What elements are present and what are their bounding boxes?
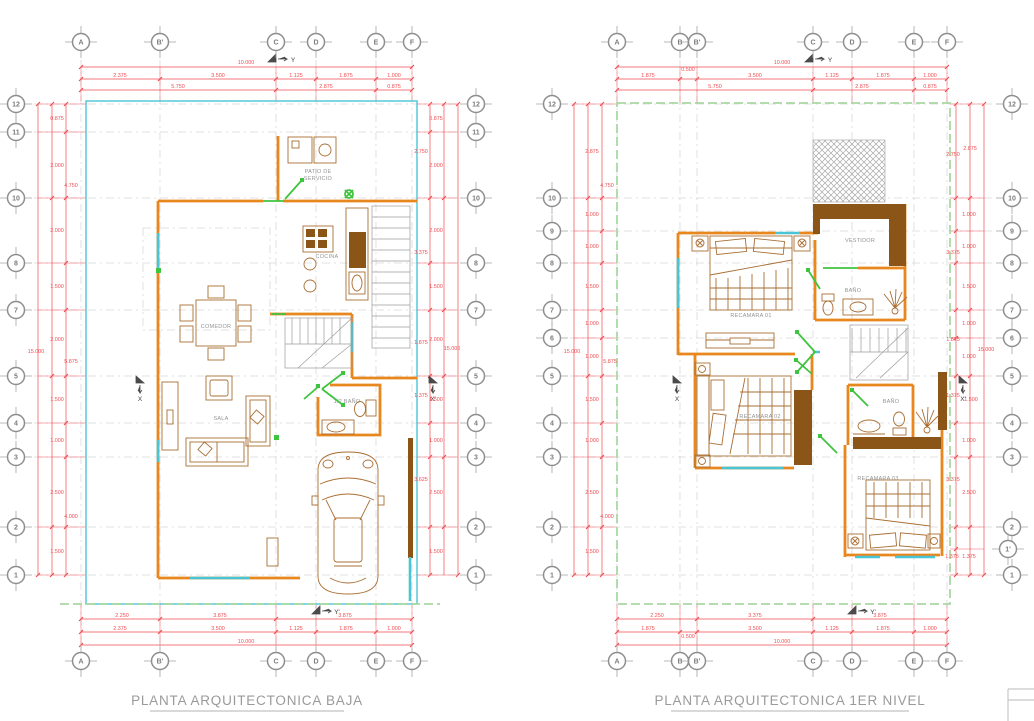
- svg-text:D: D: [313, 40, 318, 47]
- dimension-label: 3.375: [946, 477, 960, 483]
- dimension-label: 2.500: [585, 490, 599, 496]
- svg-text:B': B': [157, 40, 164, 47]
- grid-bubble: 2: [996, 511, 1028, 543]
- grid-axes-lines: [16, 42, 476, 661]
- svg-text:F: F: [945, 659, 950, 666]
- svg-text:10: 10: [472, 196, 480, 203]
- dimension-label: 0.875: [387, 84, 401, 90]
- grid-bubble: D: [300, 645, 332, 677]
- plan-nivel1: RECAMARA 01 VESTIDOR BAÑO RECAMARA 02 BA…: [536, 26, 1028, 677]
- dimension-label: 1.500: [50, 549, 64, 555]
- room-label-sala: SALA: [213, 416, 228, 422]
- svg-text:E: E: [912, 40, 917, 47]
- grid-bubble: D: [836, 645, 868, 677]
- grid-bubble: 9: [996, 215, 1028, 247]
- svg-text:11: 11: [12, 130, 20, 137]
- dimension-label: 3.500: [748, 626, 762, 632]
- dimension-label: 10.000: [774, 60, 791, 66]
- dimension-label: 1.875: [946, 337, 960, 343]
- grid-bubble: C: [797, 26, 829, 58]
- dimension-label: 2.875: [319, 84, 333, 90]
- svg-text:10: 10: [1008, 196, 1016, 203]
- dimension-label: 1.000: [962, 354, 976, 360]
- svg-text:4: 4: [1010, 421, 1014, 428]
- grid-bubble: 1: [996, 559, 1028, 591]
- dimension-label: 3.375: [414, 250, 428, 256]
- svg-text:D: D: [849, 40, 854, 47]
- grid-bubble: 2: [0, 511, 32, 543]
- grid-bubble: A: [601, 645, 633, 677]
- dimension-label: 3.875: [338, 613, 352, 619]
- dimension-label: 1.500: [429, 397, 443, 403]
- dimension-label: 0.875: [50, 116, 64, 122]
- grid-bubble: 2: [536, 511, 568, 543]
- dimension-label: 2.000: [429, 337, 443, 343]
- grid-bubble: 5: [460, 360, 492, 392]
- dimension-label: 2.000: [429, 163, 443, 169]
- grid-axes-lines: [552, 42, 1012, 661]
- grid-bubble: 7: [996, 294, 1028, 326]
- grid-bubble: 8: [996, 247, 1028, 279]
- svg-text:B: B: [677, 659, 682, 666]
- dimension-label: 2.250: [650, 613, 664, 619]
- cad-sheet: PATIO DE SERVICIO COCINA COMEDOR SALA 1/…: [0, 0, 1034, 721]
- dimension-label: 1.000: [585, 354, 599, 360]
- dimension-label: 2.250: [115, 613, 129, 619]
- dimension-label: 2.000: [50, 163, 64, 169]
- grid-bubble: B': [144, 645, 176, 677]
- grid-bubble: E: [898, 645, 930, 677]
- dimension-label: 2.875: [963, 146, 977, 152]
- grid-bubble: 10: [536, 182, 568, 214]
- dimension-label: 1.000: [585, 321, 599, 327]
- grid-bubble: E: [898, 26, 930, 58]
- recamara03-closet: [938, 372, 947, 430]
- dimension-label: 10.000: [774, 639, 791, 645]
- dimension-label: 1.500: [585, 397, 599, 403]
- dimension-label: 0.500: [681, 67, 695, 73]
- dimension-ticks: [36, 65, 460, 647]
- room-label-patio-1: PATIO DE: [305, 169, 332, 175]
- dimension-label: 1.500: [962, 284, 976, 290]
- dimension-label: 4.000: [64, 514, 78, 520]
- dimension-label: 1.500: [50, 284, 64, 290]
- recamara02-closet: [794, 390, 812, 465]
- svg-text:D: D: [849, 659, 854, 666]
- dimension-label: 1.000: [962, 321, 976, 327]
- room-label-medio-bano: 1/2 BAÑO: [334, 398, 361, 405]
- grid-bubble: 3: [460, 441, 492, 473]
- svg-text:Y: Y: [291, 57, 296, 64]
- room-label-patio-2: SERVICIO: [304, 176, 333, 182]
- svg-text:B': B': [694, 659, 701, 666]
- dimension-label: 1.500: [429, 284, 443, 290]
- svg-text:1: 1: [550, 573, 554, 580]
- grid-bubble: 4: [0, 407, 32, 439]
- dimension-label: 1.125: [289, 626, 303, 632]
- grid-bubble: 8: [0, 247, 32, 279]
- grid-bubble: A: [65, 645, 97, 677]
- dimension-label: 1.875: [641, 73, 655, 79]
- svg-text:3: 3: [1010, 455, 1014, 462]
- dimension-label: 1.875: [339, 626, 353, 632]
- svg-text:F: F: [410, 659, 415, 666]
- grid-bubble: 3: [996, 441, 1028, 473]
- grid-bubble: F: [931, 645, 963, 677]
- grid-bubble: A: [601, 26, 633, 58]
- dimension-label: 1.875: [876, 626, 890, 632]
- half-bath-fixtures: [322, 400, 376, 434]
- dimension-label: 1.500: [964, 397, 978, 403]
- grid-bubble: 11: [460, 116, 492, 148]
- dimension-label: 2.500: [962, 490, 976, 496]
- dimension-label: 4.750: [64, 183, 78, 189]
- dimension-label: 1.000: [962, 244, 976, 250]
- svg-text:8: 8: [14, 261, 18, 268]
- car: [312, 452, 384, 594]
- svg-text:C: C: [810, 659, 815, 666]
- bath-closet-band: [853, 437, 941, 449]
- vestidor-closet-side: [889, 204, 906, 266]
- grid-bubble: A: [65, 26, 97, 58]
- grid-bubble: 10: [996, 182, 1028, 214]
- double-height-hatch: [813, 140, 885, 202]
- grid-bubble: F: [396, 26, 428, 58]
- stairwell: [850, 325, 908, 380]
- grid-bubble: 5: [0, 360, 32, 392]
- dimension-label: 1.375: [962, 554, 976, 560]
- grid-bubble: B': [144, 26, 176, 58]
- dimension-label: 1.000: [387, 73, 401, 79]
- svg-text:11: 11: [472, 130, 480, 137]
- plan-baja: PATIO DE SERVICIO COCINA COMEDOR SALA 1/…: [0, 26, 492, 677]
- svg-text:12: 12: [1008, 102, 1016, 109]
- room-label-bano-sup: BAÑO: [845, 287, 862, 294]
- dimension-label: 1.125: [825, 626, 839, 632]
- svg-text:1: 1: [1010, 573, 1014, 580]
- grid-bubble: 11: [0, 116, 32, 148]
- dimension-label: 15.000: [28, 349, 45, 355]
- lower-bath-fixtures: [853, 407, 939, 435]
- plan-title-nivel1: PLANTA ARQUITECTONICA 1ER NIVEL: [654, 693, 925, 708]
- dimension-label: 3.875: [213, 613, 227, 619]
- room-label-recamara03: RECAMARA 03: [857, 476, 898, 482]
- dimension-label: 1.000: [585, 212, 599, 218]
- svg-text:10: 10: [12, 196, 20, 203]
- dimension-label: 10.000: [238, 60, 255, 66]
- grid-bubble: C: [260, 26, 292, 58]
- room-label-recamara02: RECAMARA 02: [739, 414, 780, 420]
- dining-table-set: [180, 286, 251, 360]
- grid-bubble: C: [797, 645, 829, 677]
- grid-bubble: 12: [0, 88, 32, 120]
- floor-plan-drawing: PATIO DE SERVICIO COCINA COMEDOR SALA 1/…: [0, 0, 1034, 721]
- dimension-label: 0.500: [681, 634, 695, 640]
- laundry-appliances: [288, 137, 336, 163]
- svg-text:4: 4: [474, 421, 478, 428]
- grid-bubble: 10: [460, 182, 492, 214]
- grid-bubble: E: [360, 645, 392, 677]
- grid-bubble: 12: [460, 88, 492, 120]
- dimension-label: 2.750: [946, 152, 960, 158]
- plan-title-baja: PLANTA ARQUITECTONICA BAJA: [131, 693, 363, 708]
- dimension-label: 3.500: [748, 73, 762, 79]
- svg-text:3: 3: [550, 455, 554, 462]
- dimension-label: 15.000: [978, 347, 995, 353]
- dimension-label: 0.875: [923, 84, 937, 90]
- dimension-label: 1.375: [946, 393, 960, 399]
- dimension-label: 0.875: [429, 116, 443, 122]
- grid-bubble: 1: [536, 559, 568, 591]
- dimension-lines: [38, 67, 458, 645]
- garage-east-wall: [408, 438, 413, 558]
- titleblock-fragment: [1008, 689, 1034, 721]
- dimension-label: 1.875: [641, 626, 655, 632]
- svg-text:8: 8: [550, 261, 554, 268]
- dimension-label: 1.000: [50, 438, 64, 444]
- grid-bubble: F: [931, 26, 963, 58]
- dimension-label: 2.375: [113, 73, 127, 79]
- property-boundary-cyan: [86, 101, 417, 604]
- svg-text:2: 2: [1010, 525, 1014, 532]
- svg-text:2: 2: [14, 525, 18, 532]
- dimension-label: 2.375: [113, 626, 127, 632]
- grid-bubble: B': [681, 26, 713, 58]
- room-label-comedor: COMEDOR: [201, 324, 231, 330]
- svg-text:Y: Y: [828, 57, 833, 64]
- svg-text:5: 5: [14, 374, 18, 381]
- svg-text:7: 7: [1010, 308, 1014, 315]
- grid-bubble: C: [260, 645, 292, 677]
- dimension-ticks: [572, 65, 986, 647]
- svg-text:2: 2: [474, 525, 478, 532]
- room-label-cocina: COCINA: [316, 254, 339, 260]
- svg-text:C: C: [273, 40, 278, 47]
- svg-text:7: 7: [550, 308, 554, 315]
- grid-bubble: 5: [996, 360, 1028, 392]
- svg-text:12: 12: [12, 102, 20, 109]
- svg-text:2: 2: [550, 525, 554, 532]
- grid-bubble: 4: [536, 407, 568, 439]
- axis-marker-x-left: X: [136, 376, 144, 403]
- svg-text:7: 7: [14, 308, 18, 315]
- dimension-label: 1.875: [876, 73, 890, 79]
- doors-and-openings: [156, 178, 353, 440]
- grid-bubble: 3: [536, 441, 568, 473]
- grid-bubble: 1: [0, 559, 32, 591]
- svg-text:4: 4: [14, 421, 18, 428]
- exterior-stair: [372, 206, 410, 348]
- dimension-label: 1.500: [585, 549, 599, 555]
- dimension-label: 1.000: [585, 244, 599, 250]
- dimension-label: 2.000: [50, 228, 64, 234]
- grid-bubble-label: A: [78, 40, 83, 47]
- dimension-label: 3.500: [211, 73, 225, 79]
- grid-bubble: 7: [460, 294, 492, 326]
- svg-text:C: C: [810, 40, 815, 47]
- porch-step: [267, 538, 278, 566]
- grid-bubble: 12: [996, 88, 1028, 120]
- dimension-label: 2.500: [429, 490, 443, 496]
- grid-bubble: 4: [460, 407, 492, 439]
- axis-marker-y-top: Y: [268, 54, 296, 64]
- dimension-label: 2.875: [585, 149, 599, 155]
- grid-bubble: 1': [992, 533, 1024, 565]
- grid-bubble: 8: [460, 247, 492, 279]
- dimension-label: 1.000: [962, 212, 976, 218]
- dimension-label: 5.875: [603, 359, 617, 365]
- svg-text:3: 3: [474, 455, 478, 462]
- svg-text:E: E: [912, 659, 917, 666]
- grid-bubble: 4: [996, 407, 1028, 439]
- svg-text:C: C: [273, 659, 278, 666]
- svg-text:12: 12: [472, 102, 480, 109]
- grid-bubble: 9: [536, 215, 568, 247]
- dimension-label: 1.500: [429, 549, 443, 555]
- grid-bubble: D: [836, 26, 868, 58]
- svg-text:3: 3: [14, 455, 18, 462]
- dimension-label: 3.625: [414, 477, 428, 483]
- svg-text:5: 5: [550, 374, 554, 381]
- room-label-bano-inf: BAÑO: [883, 398, 900, 405]
- svg-text:4: 4: [550, 421, 554, 428]
- dimension-label: 1.125: [825, 73, 839, 79]
- dimension-label: 4.000: [600, 514, 614, 520]
- svg-text:9: 9: [550, 229, 554, 236]
- svg-text:A: A: [614, 40, 619, 47]
- dimension-label: 2.000: [50, 337, 64, 343]
- dimension-label: 4.750: [600, 183, 614, 189]
- dimension-label: 3.875: [873, 613, 887, 619]
- dimension-label: 3.375: [748, 613, 762, 619]
- svg-text:F: F: [945, 40, 950, 47]
- svg-text:A: A: [614, 659, 619, 666]
- svg-text:E: E: [374, 659, 379, 666]
- svg-text:X: X: [675, 396, 680, 403]
- svg-text:A: A: [78, 659, 83, 666]
- dimension-label: 3.500: [211, 626, 225, 632]
- svg-text:5: 5: [474, 374, 478, 381]
- grid-bubble: D: [300, 26, 332, 58]
- svg-text:B': B': [694, 40, 701, 47]
- grid-bubble: F: [396, 645, 428, 677]
- room-label-recamara01: RECAMARA 01: [730, 313, 771, 319]
- dimension-label: 15.000: [444, 346, 461, 352]
- vestidor-closet-stub: [813, 204, 820, 234]
- grid-bubble: 10: [0, 182, 32, 214]
- svg-text:5: 5: [1010, 374, 1014, 381]
- grid-bubble: 2: [460, 511, 492, 543]
- grid-bubble: 8: [536, 247, 568, 279]
- dimension-label: 10.000: [238, 639, 255, 645]
- svg-text:6: 6: [550, 336, 554, 343]
- dimension-label: 1.125: [289, 73, 303, 79]
- svg-text:8: 8: [1010, 261, 1014, 268]
- bed-recamara01: [710, 236, 792, 310]
- grid-bubble: 5: [536, 360, 568, 392]
- grid-bubble: 7: [0, 294, 32, 326]
- bed-recamara03: [866, 480, 930, 550]
- svg-text:6: 6: [1010, 336, 1014, 343]
- kitchen-counter-fridge-sink: [346, 208, 368, 300]
- dimension-label: 2.500: [50, 490, 64, 496]
- dimension-label: 1.000: [923, 73, 937, 79]
- svg-text:D: D: [313, 659, 318, 666]
- grid-bubble: 3: [0, 441, 32, 473]
- dimension-label: 2.000: [429, 228, 443, 234]
- dimension-label: 5.750: [708, 84, 722, 90]
- dimension-label: 1.375: [414, 393, 428, 399]
- svg-text:X: X: [138, 396, 143, 403]
- grid-bubble: 6: [996, 322, 1028, 354]
- svg-text:1: 1: [474, 573, 478, 580]
- svg-text:B': B': [157, 659, 164, 666]
- svg-text:E: E: [374, 40, 379, 47]
- extension-lines: [38, 67, 458, 645]
- grid-bubble: 1: [460, 559, 492, 591]
- console-recamara01: [706, 333, 774, 348]
- dimension-label: 1.375: [945, 554, 959, 560]
- svg-text:1': 1': [1005, 547, 1011, 554]
- dimension-label: 1.000: [923, 626, 937, 632]
- grid-bubble: 12: [536, 88, 568, 120]
- dimension-label: 2.750: [414, 149, 428, 155]
- svg-text:9: 9: [1010, 229, 1014, 236]
- dimension-label: 1.500: [585, 284, 599, 290]
- dimension-label: 2.875: [855, 84, 869, 90]
- room-label-vestidor: VESTIDOR: [845, 238, 875, 244]
- svg-text:8: 8: [474, 261, 478, 268]
- dimension-label: 3.375: [946, 250, 960, 256]
- svg-text:1: 1: [14, 573, 18, 580]
- dimension-label: 5.875: [64, 359, 78, 365]
- grid-bubble: 7: [536, 294, 568, 326]
- grid-bubble: E: [360, 26, 392, 58]
- dimension-label: 1.875: [339, 73, 353, 79]
- svg-text:12: 12: [548, 102, 556, 109]
- svg-text:F: F: [410, 40, 415, 47]
- dimension-label: 15.000: [564, 349, 581, 355]
- main-stair: [285, 318, 352, 368]
- upper-bath-fixtures: [822, 289, 907, 315]
- grid-bubble: B': [681, 645, 713, 677]
- svg-text:7: 7: [474, 308, 478, 315]
- dimension-label: 1.000: [585, 438, 599, 444]
- dimension-label: 1.500: [50, 397, 64, 403]
- axis-marker-y-top: Y: [805, 54, 833, 64]
- dimension-label: 5.750: [171, 84, 185, 90]
- svg-text:B: B: [677, 40, 682, 47]
- dimension-label: 1.000: [962, 438, 976, 444]
- svg-text:10: 10: [548, 196, 556, 203]
- dimension-label: 1.000: [387, 626, 401, 632]
- dimension-label: 1.000: [429, 438, 443, 444]
- dimension-label: 1.875: [414, 340, 428, 346]
